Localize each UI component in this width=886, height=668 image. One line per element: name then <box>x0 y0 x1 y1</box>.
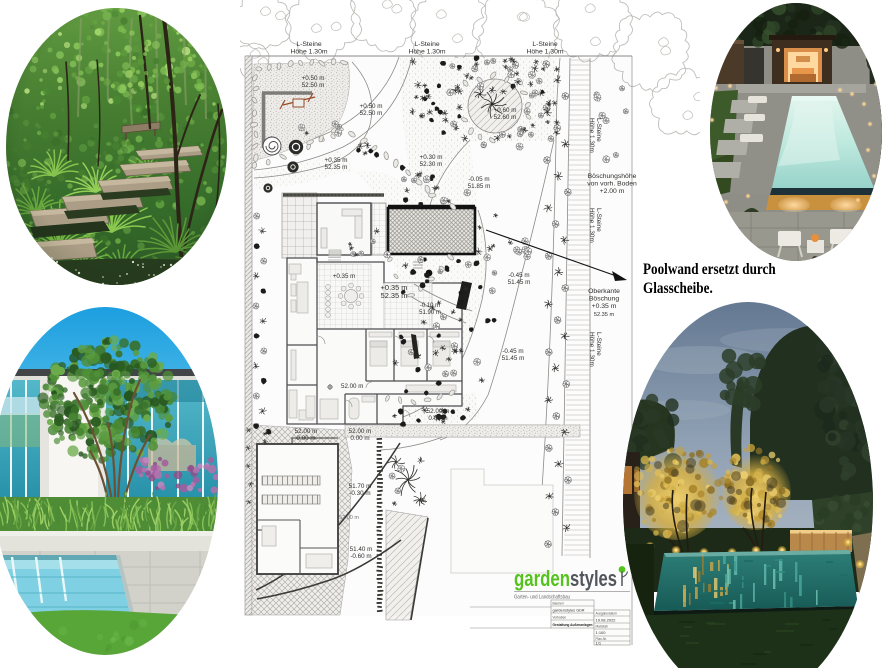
svg-text:gardenstyles GbR: gardenstyles GbR <box>553 608 585 613</box>
svg-text:Bauherr: Bauherr <box>553 602 565 606</box>
svg-text:L-SteineHöhe 1.30m: L-SteineHöhe 1.30m <box>290 41 327 56</box>
svg-text:+0.35 m: +0.35 m <box>333 273 356 280</box>
svg-text:-0.45 m51.45 m: -0.45 m51.45 m <box>502 348 525 362</box>
svg-text:Maßstab: Maßstab <box>596 625 609 629</box>
svg-text:51.70 m-0.30 m: 51.70 m-0.30 m <box>349 483 372 497</box>
svg-text:52.00 m0.00 m: 52.00 m0.00 m <box>427 408 450 422</box>
svg-text:52.00 m: 52.00 m <box>341 383 363 390</box>
svg-text:+0.35 m52.35 m: +0.35 m52.35 m <box>381 283 408 300</box>
svg-text:+0.30 m52.30 m: +0.30 m52.30 m <box>420 154 443 168</box>
svg-text:+0.60 m52.60 m: +0.60 m52.60 m <box>494 107 517 121</box>
svg-text:+0.50 m52.50 m: +0.50 m52.50 m <box>360 103 383 117</box>
svg-text:52.35 m: 52.35 m <box>594 312 615 318</box>
svg-text:-0.05 m51.85 m: -0.05 m51.85 m <box>468 176 491 190</box>
svg-text:Vorhaben: Vorhaben <box>553 616 567 620</box>
svg-text:Gestaltung Außenanlagen: Gestaltung Außenanlagen <box>553 622 593 627</box>
svg-text:52.00 m0.00 m: 52.00 m0.00 m <box>295 428 318 442</box>
svg-text:Ausgabedatum: Ausgabedatum <box>596 612 618 616</box>
svg-text:1:100: 1:100 <box>596 630 607 635</box>
svg-text:+0.50 m52.50 m: +0.50 m52.50 m <box>302 75 325 89</box>
svg-text:51.40 m-0.60 m: 51.40 m-0.60 m <box>350 546 373 560</box>
svg-text:-0.45 m51.45 m: -0.45 m51.45 m <box>508 272 531 286</box>
svg-text:OberkanteBöschung+0.35 m: OberkanteBöschung+0.35 m <box>588 288 620 310</box>
svg-text:1/1: 1/1 <box>596 641 602 646</box>
svg-text:L-SteineHöhe 1.30m: L-SteineHöhe 1.30m <box>526 41 563 56</box>
svg-text:52.00 m: 52.00 m <box>339 515 359 521</box>
svg-text:Garten- und Landschaftsbau: Garten- und Landschaftsbau <box>514 595 570 601</box>
svg-text:-0.10 m51.90 m: -0.10 m51.90 m <box>419 303 441 316</box>
svg-text:styles: styles <box>570 566 617 591</box>
svg-text:52.00 m0.00 m: 52.00 m0.00 m <box>349 428 372 442</box>
svg-text:19.08.2022: 19.08.2022 <box>596 618 617 623</box>
svg-text:garden: garden <box>514 566 570 591</box>
svg-text:L-SteineHöhe 1.30m: L-SteineHöhe 1.30m <box>408 41 445 56</box>
svg-text:+0.35 m52.35 m: +0.35 m52.35 m <box>325 157 348 171</box>
